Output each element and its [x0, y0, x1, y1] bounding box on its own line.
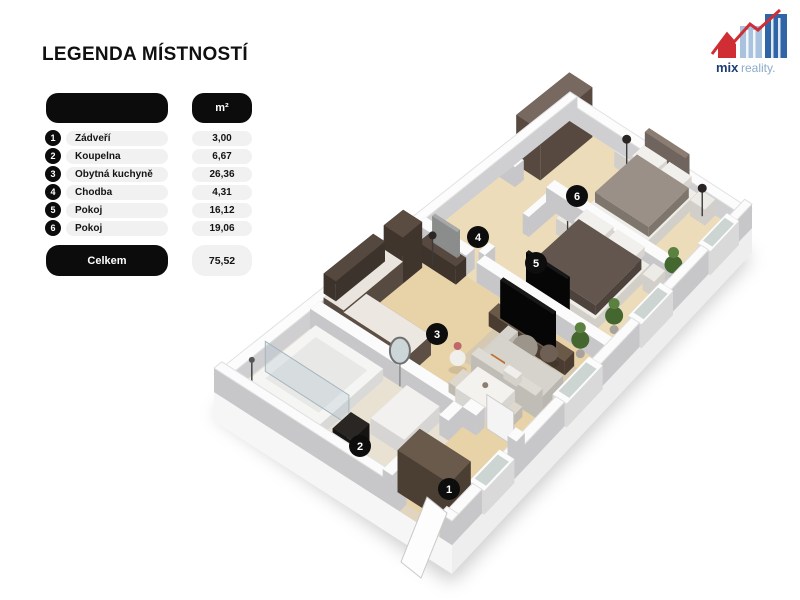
dining-decor: [482, 382, 488, 388]
plant5: [605, 307, 623, 325]
room-number-badge: 6: [45, 220, 61, 236]
legend-total-area: 75,52: [192, 245, 252, 276]
room-area: 19,06: [192, 221, 252, 236]
brand-logo: mix reality.: [692, 6, 800, 80]
room-area: 26,36: [192, 167, 252, 182]
room-number-badge: 5: [45, 202, 61, 218]
room-name: Pokoj: [66, 221, 168, 236]
plant-living-top: [575, 322, 586, 333]
side-table-flowers: [454, 342, 462, 350]
room-name: Pokoj: [66, 203, 168, 218]
room-badge-1: 1: [438, 478, 460, 500]
svg-text:4: 4: [475, 232, 482, 244]
svg-text:3: 3: [434, 329, 440, 341]
room-badge-4: 4: [467, 226, 489, 248]
svg-text:1: 1: [446, 484, 452, 496]
room-area: 6,67: [192, 149, 252, 164]
room-number-badge: 3: [45, 166, 61, 182]
logo-window-stripe: [746, 30, 749, 58]
legend-header-unit: m²: [192, 93, 252, 123]
room-area: 3,00: [192, 131, 252, 146]
logo-window-stripe: [771, 18, 774, 58]
plant6-top: [668, 247, 679, 258]
logo-window-stripe: [778, 18, 781, 58]
page: 123456 LEGENDA MÍSTNOSTÍ m² 1Zádveří3,00…: [0, 0, 800, 600]
room-name: Zádveří: [66, 131, 168, 146]
svg-text:6: 6: [574, 191, 580, 203]
legend-header-name: [46, 93, 168, 123]
room-number-badge: 1: [45, 130, 61, 146]
logo-window-stripe: [753, 30, 756, 58]
svg-text:5: 5: [533, 258, 539, 270]
legend-total-label: Celkem: [46, 245, 168, 276]
room-name: Chodba: [66, 185, 168, 200]
room-name: Obytná kuchyně: [66, 167, 168, 182]
plant5-top: [609, 298, 620, 309]
room-badge-5: 5: [525, 252, 547, 274]
room-number-badge: 2: [45, 148, 61, 164]
room-badge-6: 6: [566, 185, 588, 207]
room-badge-2: 2: [349, 435, 371, 457]
room-badge-3: 3: [426, 323, 448, 345]
floorplan-render: 123456: [0, 0, 800, 600]
plant-living: [571, 331, 589, 349]
plant-living-pot: [576, 349, 585, 358]
svg-text:2: 2: [357, 441, 363, 453]
page-title: LEGENDA MÍSTNOSTÍ: [42, 44, 248, 66]
room-number-badge: 4: [45, 184, 61, 200]
room-name: Koupelna: [66, 149, 168, 164]
brand-name-light: reality.: [741, 61, 775, 75]
brand-name-bold: mix: [716, 60, 739, 75]
room-area: 16,12: [192, 203, 252, 218]
room-area: 4,31: [192, 185, 252, 200]
